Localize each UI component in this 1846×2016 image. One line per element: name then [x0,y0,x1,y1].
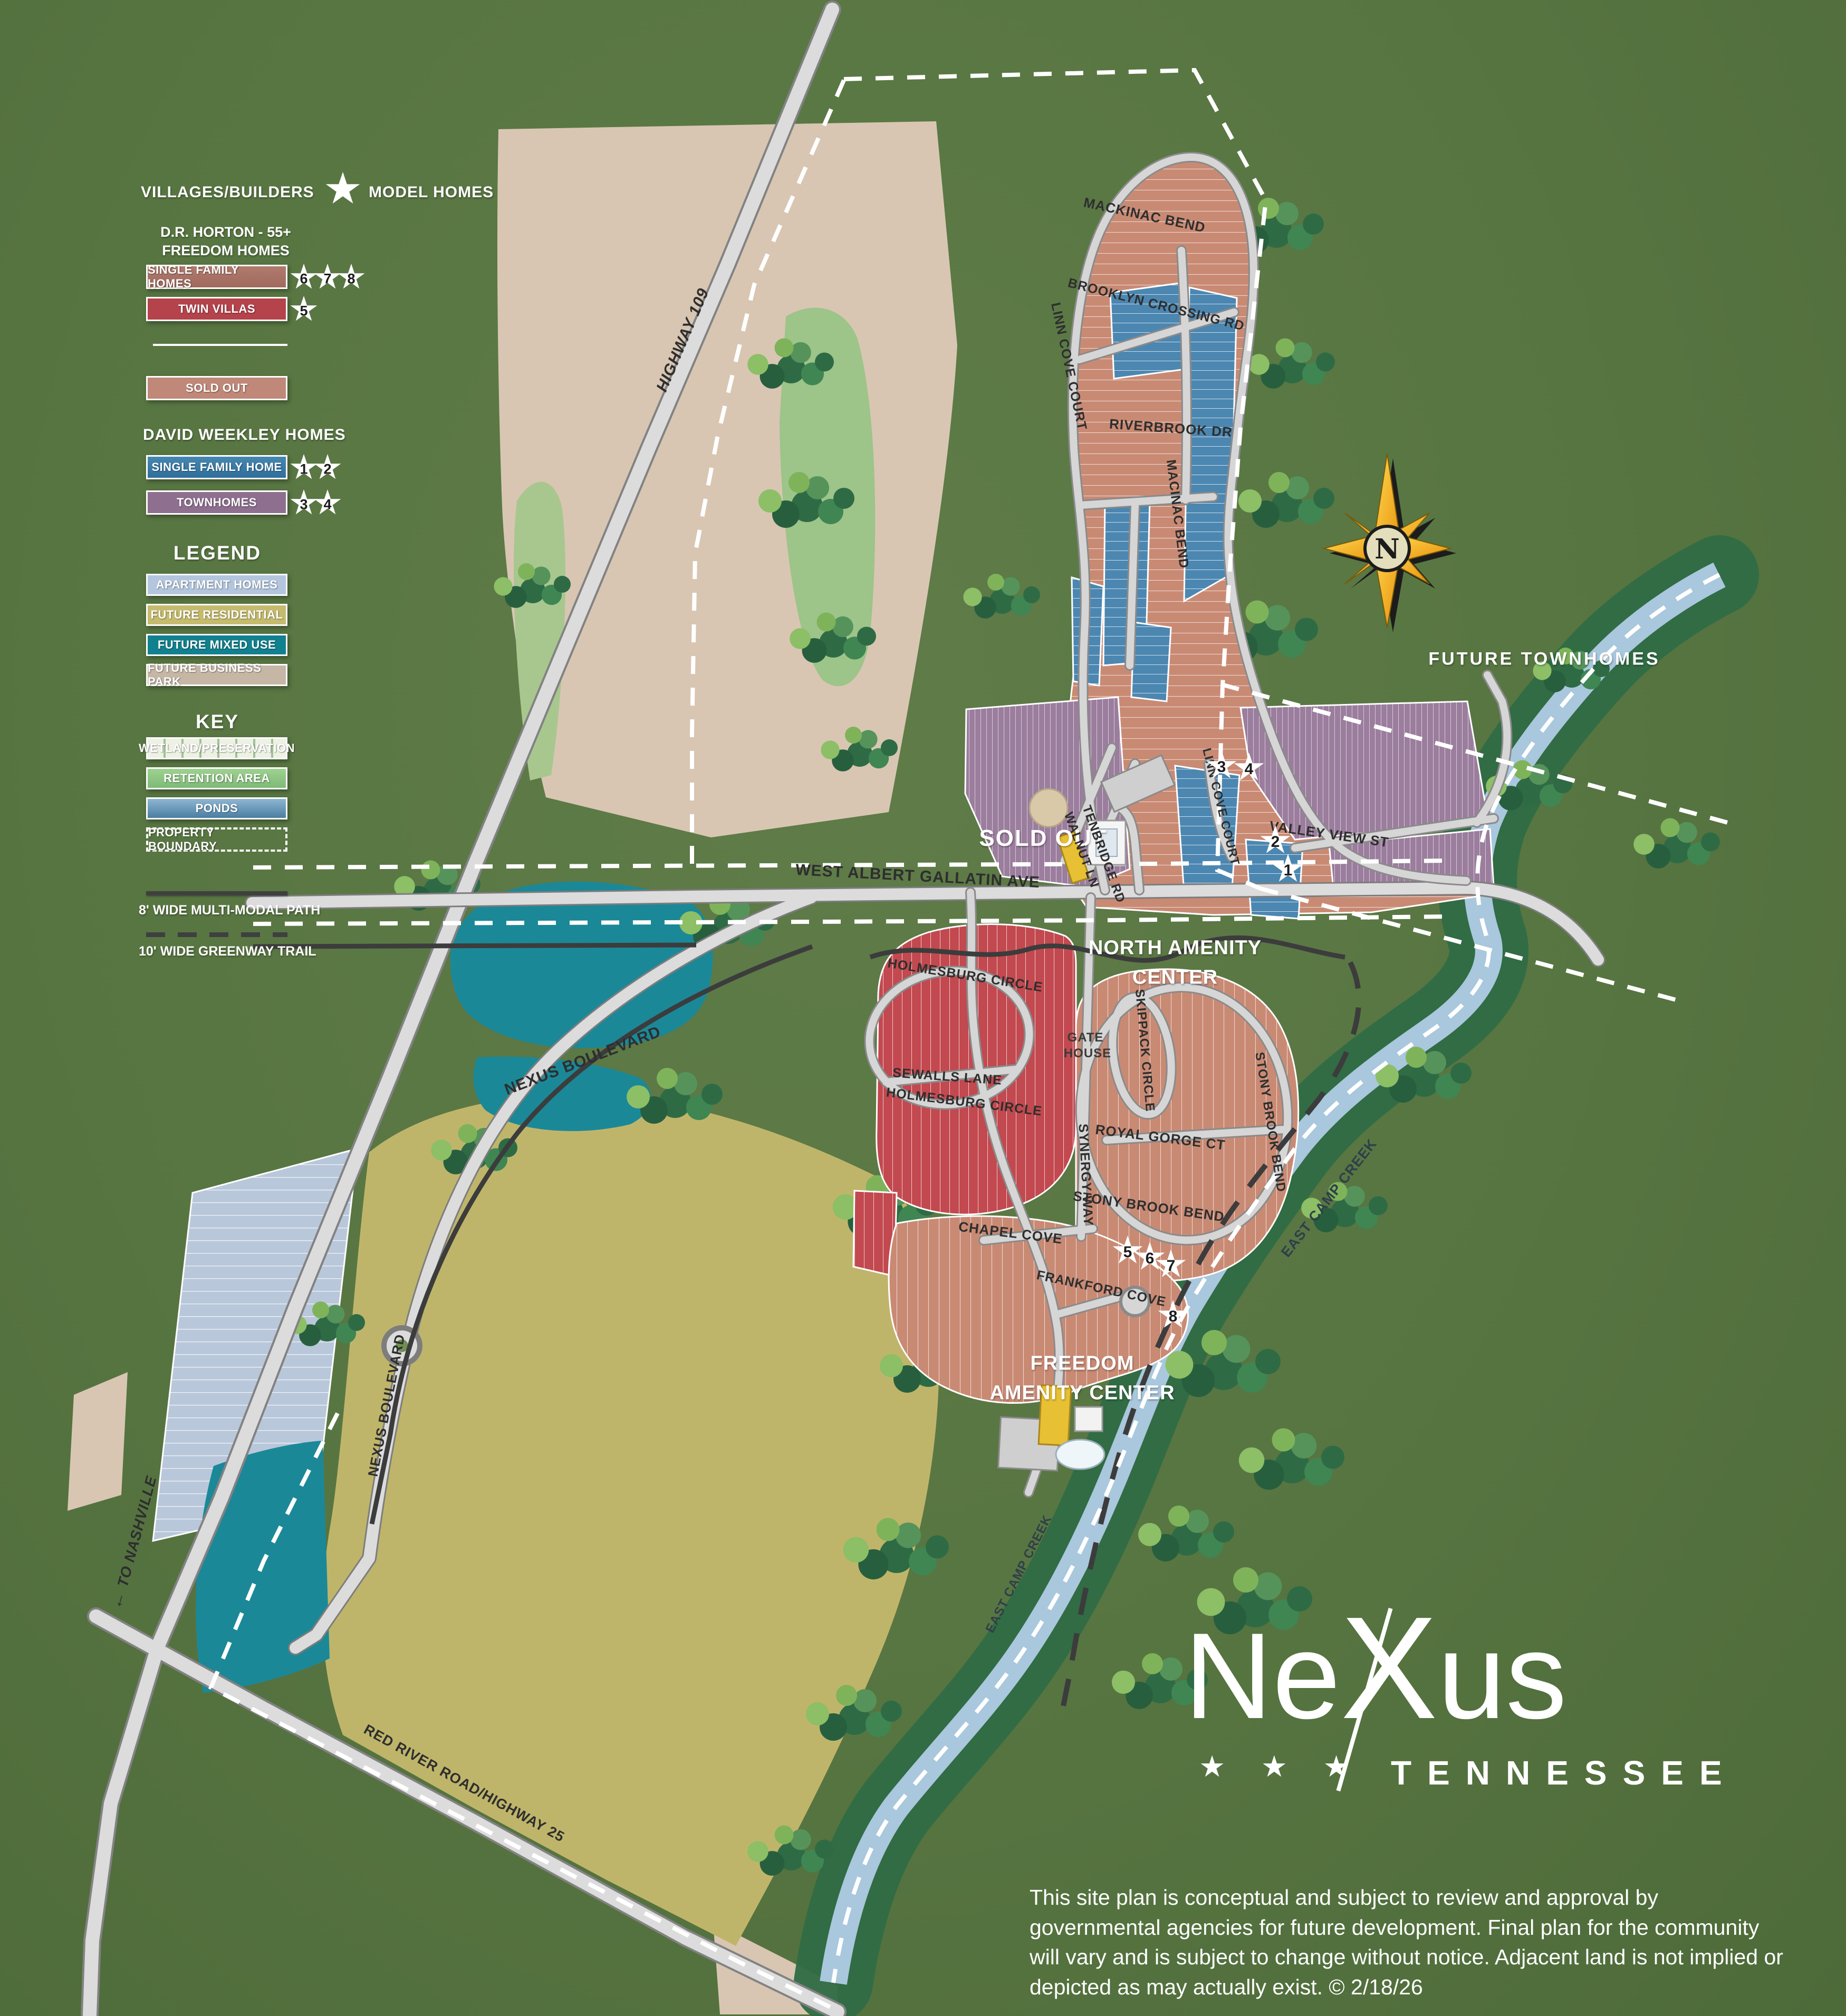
stars-th: 3 4 [294,489,341,517]
legend-star-4: 4 [314,489,341,517]
greenway-trail-label: 10' WIDE GREENWAY TRAIL [139,944,316,959]
multi-modal-path-sample [146,891,287,895]
legend-divider [153,344,287,346]
greenway-trail-sample [146,932,287,937]
swatch-wetland: WETLAND/PRESERVATION [146,737,287,759]
logo-state: TENNESSEE [1391,1753,1738,1792]
legend-title-villages-builders: VILLAGES/BUILDERS [141,184,314,201]
swatch-property-boundary: PROPERTY BOUNDARY [146,827,287,852]
swatch-townhomes: TOWNHOMES [146,490,287,515]
dr-horton-line1: D.R. HORTON - 55+ [144,224,307,240]
label-north-amenity-2: CENTER [1132,967,1218,989]
swatch-future-mixed-use: FUTURE MIXED USE [146,634,287,656]
legend-star-8: 8 [338,264,365,291]
swatch-retention-area: RETENTION AREA [146,767,287,789]
david-weekley-title: DAVID WEEKLEY HOMES [143,426,346,444]
label-freedom-amenity-1: FREEDOM [1031,1353,1134,1375]
swatch-apartment-homes: APARTMENT HOMES [146,574,287,596]
model-homes-star-icon [325,172,360,207]
swatch-ponds: PONDS [146,797,287,819]
legend-title-model-homes: MODEL HOMES [369,184,494,201]
stars-sfh: 6 7 8 [294,264,365,291]
label-future-townhomes: FUTURE TOWNHOMES [1428,649,1660,670]
compass-rose: N [1324,454,1456,632]
logo-stars-icon: ★ ★ ★ [1199,1749,1363,1784]
disclaimer-text: This site plan is conceptual and subject… [1030,1883,1784,2002]
key-section-title: KEY [136,711,299,733]
swatch-sold-out: SOLD OUT [146,376,287,400]
logo-wordmark: NeXus [1184,1595,1567,1741]
legend-star-3: 3 [290,489,318,517]
label-north-amenity-1: NORTH AMENITY [1089,937,1262,960]
legend-star-1: 1 [290,454,318,481]
legend-star-5: 5 [290,296,318,323]
label-gate-house-2: HOUSE [1064,1046,1111,1061]
nexus-logo: NeXus ★ ★ ★ TENNESSEE [1184,1595,1659,1801]
site-plan-map: N HIGHWAY 109 ← TO NASHVILLE RED RIVER R… [0,0,1846,2016]
legend-star-7: 7 [314,264,341,291]
multi-modal-path-label: 8' WIDE MULTI-MODAL PATH [139,903,320,918]
label-freedom-amenity-2: AMENITY CENTER [989,1382,1175,1405]
legend-star-6: 6 [290,264,318,291]
stars-tv: 5 [294,296,318,323]
legend-section-title: LEGEND [136,542,299,564]
swatch-dw-single-family: SINGLE FAMILY HOME [146,455,287,479]
legend-star-2: 2 [314,454,341,481]
swatch-single-family-homes: SINGLE FAMILY HOMES [146,265,287,289]
dr-horton-line2: FREEDOM HOMES [144,243,307,259]
label-gate-house-1: GATE [1068,1030,1104,1045]
stars-dwsf: 1 2 [294,454,341,481]
swatch-future-business-park: FUTURE BUSINESS PARK [146,664,287,686]
swatch-twin-villas: TWIN VILLAS [146,297,287,321]
region-south-neighborhood [853,924,1299,1403]
legend-panel: VILLAGES/BUILDERS MODEL HOMES D.R. HORTO… [134,174,514,976]
compass-n-letter: N [1374,533,1400,565]
swatch-future-residential: FUTURE RESIDENTIAL [146,604,287,626]
